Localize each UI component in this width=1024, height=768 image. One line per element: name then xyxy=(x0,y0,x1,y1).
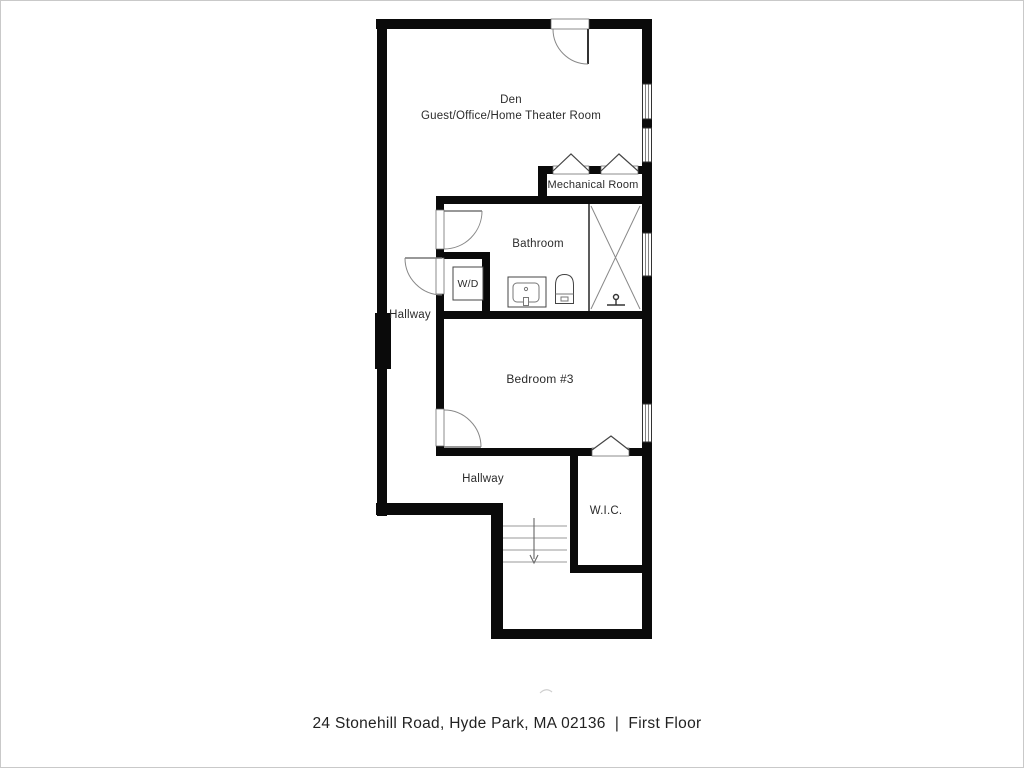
wall-mechanical-top-c xyxy=(638,166,651,174)
wall-bedroom-top xyxy=(436,311,651,319)
watermark-mark xyxy=(540,690,552,693)
den-entry-opening xyxy=(551,19,589,29)
wall-hallway-step xyxy=(376,503,501,515)
window-den-2 xyxy=(643,128,652,162)
wall-mechanical-top-a xyxy=(538,166,553,174)
bedroom-door xyxy=(444,410,481,447)
wall-bedroom-bottom-b xyxy=(629,448,651,456)
wall-mechanical-top-b xyxy=(589,166,601,174)
sink-icon xyxy=(508,277,546,307)
bedroom-door-opening xyxy=(436,409,444,446)
bathroom-door-opening xyxy=(436,210,444,249)
window-bathroom xyxy=(643,233,652,276)
wall-left-outer xyxy=(377,19,387,516)
hallway-upper-label: Hallway xyxy=(389,309,431,321)
bathroom-door xyxy=(444,211,482,249)
wall-bottom-outer xyxy=(491,629,651,639)
window-bedroom xyxy=(643,404,652,442)
wall-top-right-segment xyxy=(589,19,651,29)
den-entry-door xyxy=(553,29,588,64)
floor-plan-page: Den Guest/Office/Home Theater Room Mecha… xyxy=(0,0,1024,768)
wic-bifold-door xyxy=(592,436,629,450)
wall-bedroom-left-a xyxy=(436,319,444,409)
wall-wic-bottom xyxy=(570,565,651,573)
wall-wic-left xyxy=(570,448,578,573)
shower-valve-icon xyxy=(607,295,625,306)
bedroom3-label: Bedroom #3 xyxy=(506,372,573,386)
shower xyxy=(589,204,640,311)
den-label-line1: Den xyxy=(500,94,522,106)
washer-dryer-label: W/D xyxy=(457,278,478,290)
mechanical-bifold-door-2 xyxy=(601,154,638,171)
toilet-icon xyxy=(556,275,574,304)
window-den-1 xyxy=(643,84,652,119)
wall-left-pilaster xyxy=(375,313,391,369)
hallway-lower-label: Hallway xyxy=(462,473,504,485)
wall-bedroom-bottom-a xyxy=(436,448,592,456)
wall-stair-left xyxy=(491,503,503,639)
bathroom-label: Bathroom xyxy=(512,238,563,250)
wall-bathroom-left-a xyxy=(436,196,444,210)
staircase xyxy=(503,518,567,563)
wall-top-left-segment xyxy=(376,19,551,29)
mechanical-bifold-door-1 xyxy=(553,154,589,171)
address-caption: 24 Stonehill Road, Hyde Park, MA 02136 |… xyxy=(313,715,702,733)
wd-door-opening xyxy=(436,258,444,294)
den-label-line2: Guest/Office/Home Theater Room xyxy=(421,110,601,122)
mechanical-room-label: Mechanical Room xyxy=(547,179,638,191)
wic-label: W.I.C. xyxy=(590,505,623,517)
